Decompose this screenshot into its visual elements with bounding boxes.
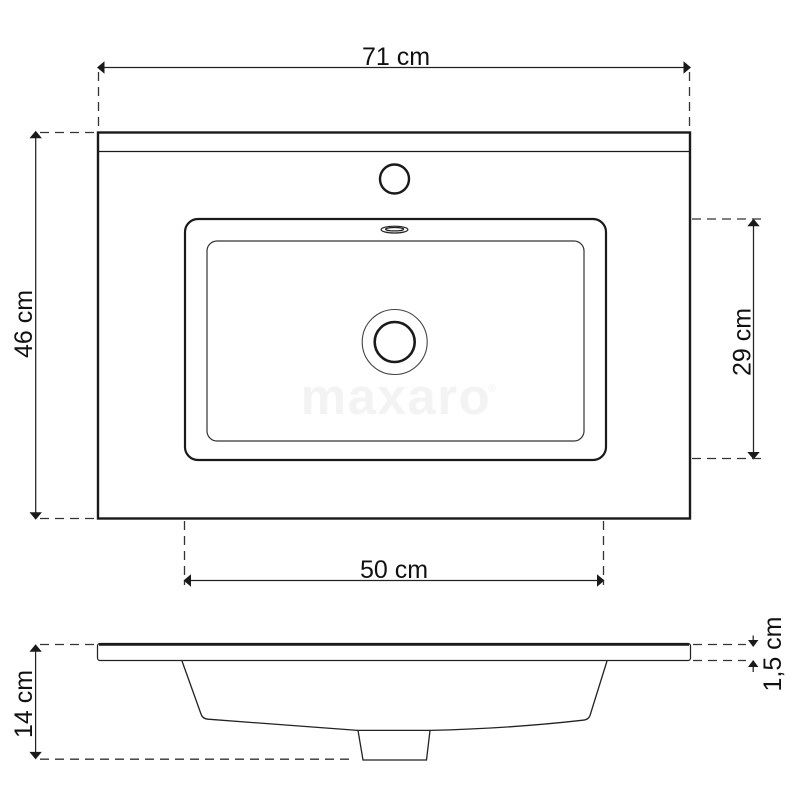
svg-text:46 cm: 46 cm <box>10 290 38 358</box>
svg-text:14 cm: 14 cm <box>10 670 38 738</box>
svg-text:1,5 cm: 1,5 cm <box>759 616 787 691</box>
svg-text:maxaro: maxaro <box>301 368 491 425</box>
svg-text:71 cm: 71 cm <box>362 43 430 71</box>
svg-text:29 cm: 29 cm <box>729 308 757 376</box>
svg-text:®: ® <box>488 383 496 395</box>
svg-text:50 cm: 50 cm <box>360 556 428 584</box>
